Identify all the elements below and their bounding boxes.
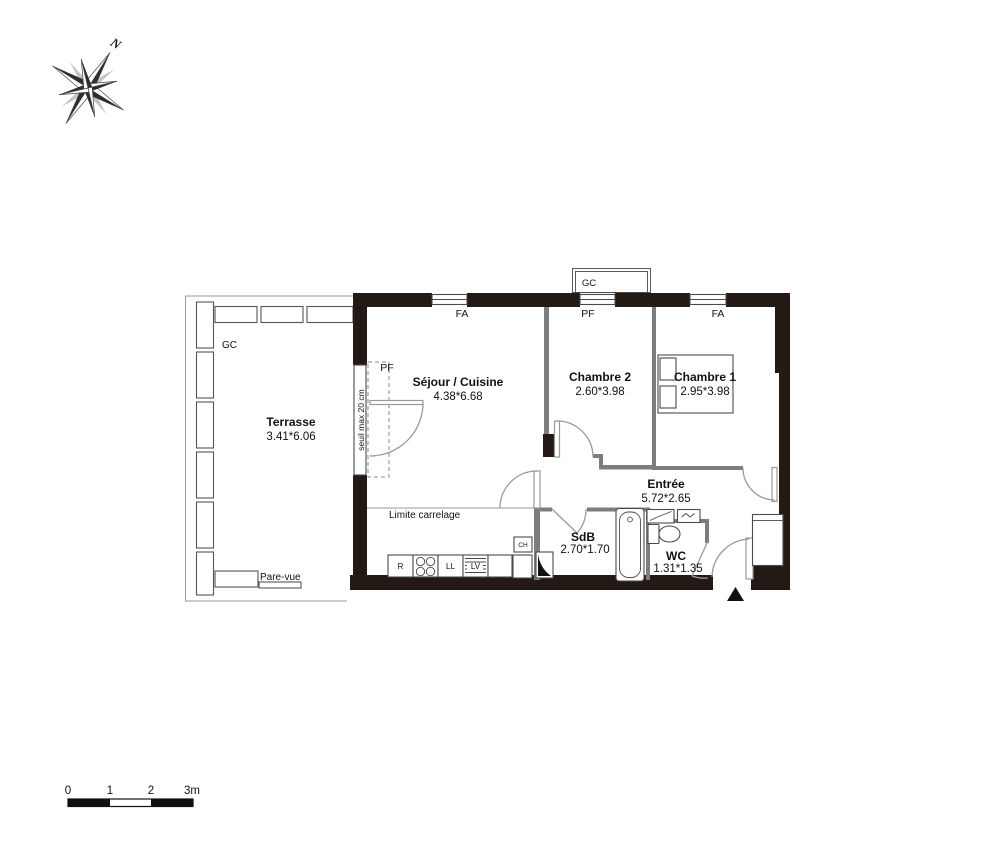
svg-text:4.38*6.68: 4.38*6.68 bbox=[433, 391, 482, 403]
chambre1-bed bbox=[658, 355, 733, 413]
compass-north-label: N bbox=[107, 34, 124, 53]
washing-machine-label: LL bbox=[446, 562, 455, 571]
svg-text:2.95*3.98: 2.95*3.98 bbox=[680, 386, 729, 398]
room-label-sdb: SdB 2.70*1.70 bbox=[560, 530, 609, 556]
svg-text:Chambre 2: Chambre 2 bbox=[569, 370, 631, 384]
svg-text:1.31*1.35: 1.31*1.35 bbox=[653, 563, 702, 575]
cabinet bbox=[513, 555, 532, 578]
chambre2-door bbox=[555, 421, 594, 457]
gc-top-label: GC bbox=[582, 278, 596, 289]
gc-terrace-label: GC bbox=[222, 340, 237, 351]
compass-rose: N bbox=[30, 15, 155, 146]
room-label-chambre2: Chambre 2 2.60*3.98 bbox=[569, 370, 631, 398]
room-label-sejour-cuisine: Séjour / Cuisine 4.38*6.68 bbox=[413, 375, 504, 403]
terrace-door bbox=[370, 401, 423, 457]
cooktop bbox=[413, 555, 438, 577]
scale-tick-1: 1 bbox=[107, 785, 113, 797]
scale-bar: 0 1 2 3m bbox=[65, 785, 200, 807]
chambre1-door bbox=[743, 468, 777, 502]
limite-carrelage-label: Limite carrelage bbox=[389, 510, 461, 521]
svg-text:Entrée: Entrée bbox=[647, 477, 685, 491]
svg-text:Chambre 1: Chambre 1 bbox=[674, 370, 736, 384]
counter bbox=[488, 555, 512, 577]
svg-text:Séjour / Cuisine: Séjour / Cuisine bbox=[413, 375, 504, 389]
svg-text:2.60*3.98: 2.60*3.98 bbox=[575, 386, 624, 398]
pare-vue-label: Pare-vue bbox=[260, 572, 301, 583]
pf-center-label: PF bbox=[581, 308, 594, 320]
window-fa-left bbox=[432, 295, 467, 305]
seuil-note: seuil max 20 cm bbox=[356, 389, 366, 450]
room-label-terrasse: Terrasse 3.41*6.06 bbox=[266, 415, 316, 443]
svg-text:2.70*1.70: 2.70*1.70 bbox=[560, 544, 609, 556]
scale-tick-2: 2 bbox=[148, 785, 154, 797]
room-label-entree: Entrée 5.72*2.65 bbox=[641, 477, 690, 505]
floorplan-page: N bbox=[0, 0, 1000, 857]
pf-door-clearance bbox=[368, 362, 389, 477]
entry-door bbox=[712, 538, 753, 601]
svg-text:Terrasse: Terrasse bbox=[266, 415, 315, 429]
duct-box bbox=[536, 552, 553, 578]
window-pf-center bbox=[580, 295, 615, 305]
entry-nook bbox=[753, 515, 784, 566]
toilet bbox=[648, 525, 680, 544]
terrace-railing bbox=[186, 296, 356, 601]
bathtub bbox=[616, 509, 644, 582]
fridge-label: R bbox=[398, 562, 404, 571]
svg-text:WC: WC bbox=[666, 549, 686, 563]
sejour-entree-door bbox=[500, 471, 540, 508]
svg-text:3.41*6.06: 3.41*6.06 bbox=[266, 431, 315, 443]
washbasin bbox=[647, 510, 674, 524]
towel-unit bbox=[678, 510, 701, 523]
window-fa-right bbox=[690, 295, 726, 305]
pf-terrace-label: PF bbox=[380, 362, 393, 374]
svg-text:5.72*2.65: 5.72*2.65 bbox=[641, 493, 690, 505]
room-label-wc: WC 1.31*1.35 bbox=[653, 549, 702, 575]
water-heater-label: CH bbox=[518, 542, 528, 549]
gc-duct-box: GC bbox=[573, 269, 651, 293]
fa-right-label: FA bbox=[712, 308, 725, 320]
scale-tick-3: 3m bbox=[184, 785, 200, 797]
entry-arrow bbox=[727, 587, 744, 601]
scale-tick-0: 0 bbox=[65, 785, 71, 797]
compass-star: N bbox=[30, 15, 155, 146]
fa-left-label: FA bbox=[456, 308, 469, 320]
svg-text:SdB: SdB bbox=[571, 530, 595, 544]
dishwasher-label: LV bbox=[471, 562, 481, 571]
